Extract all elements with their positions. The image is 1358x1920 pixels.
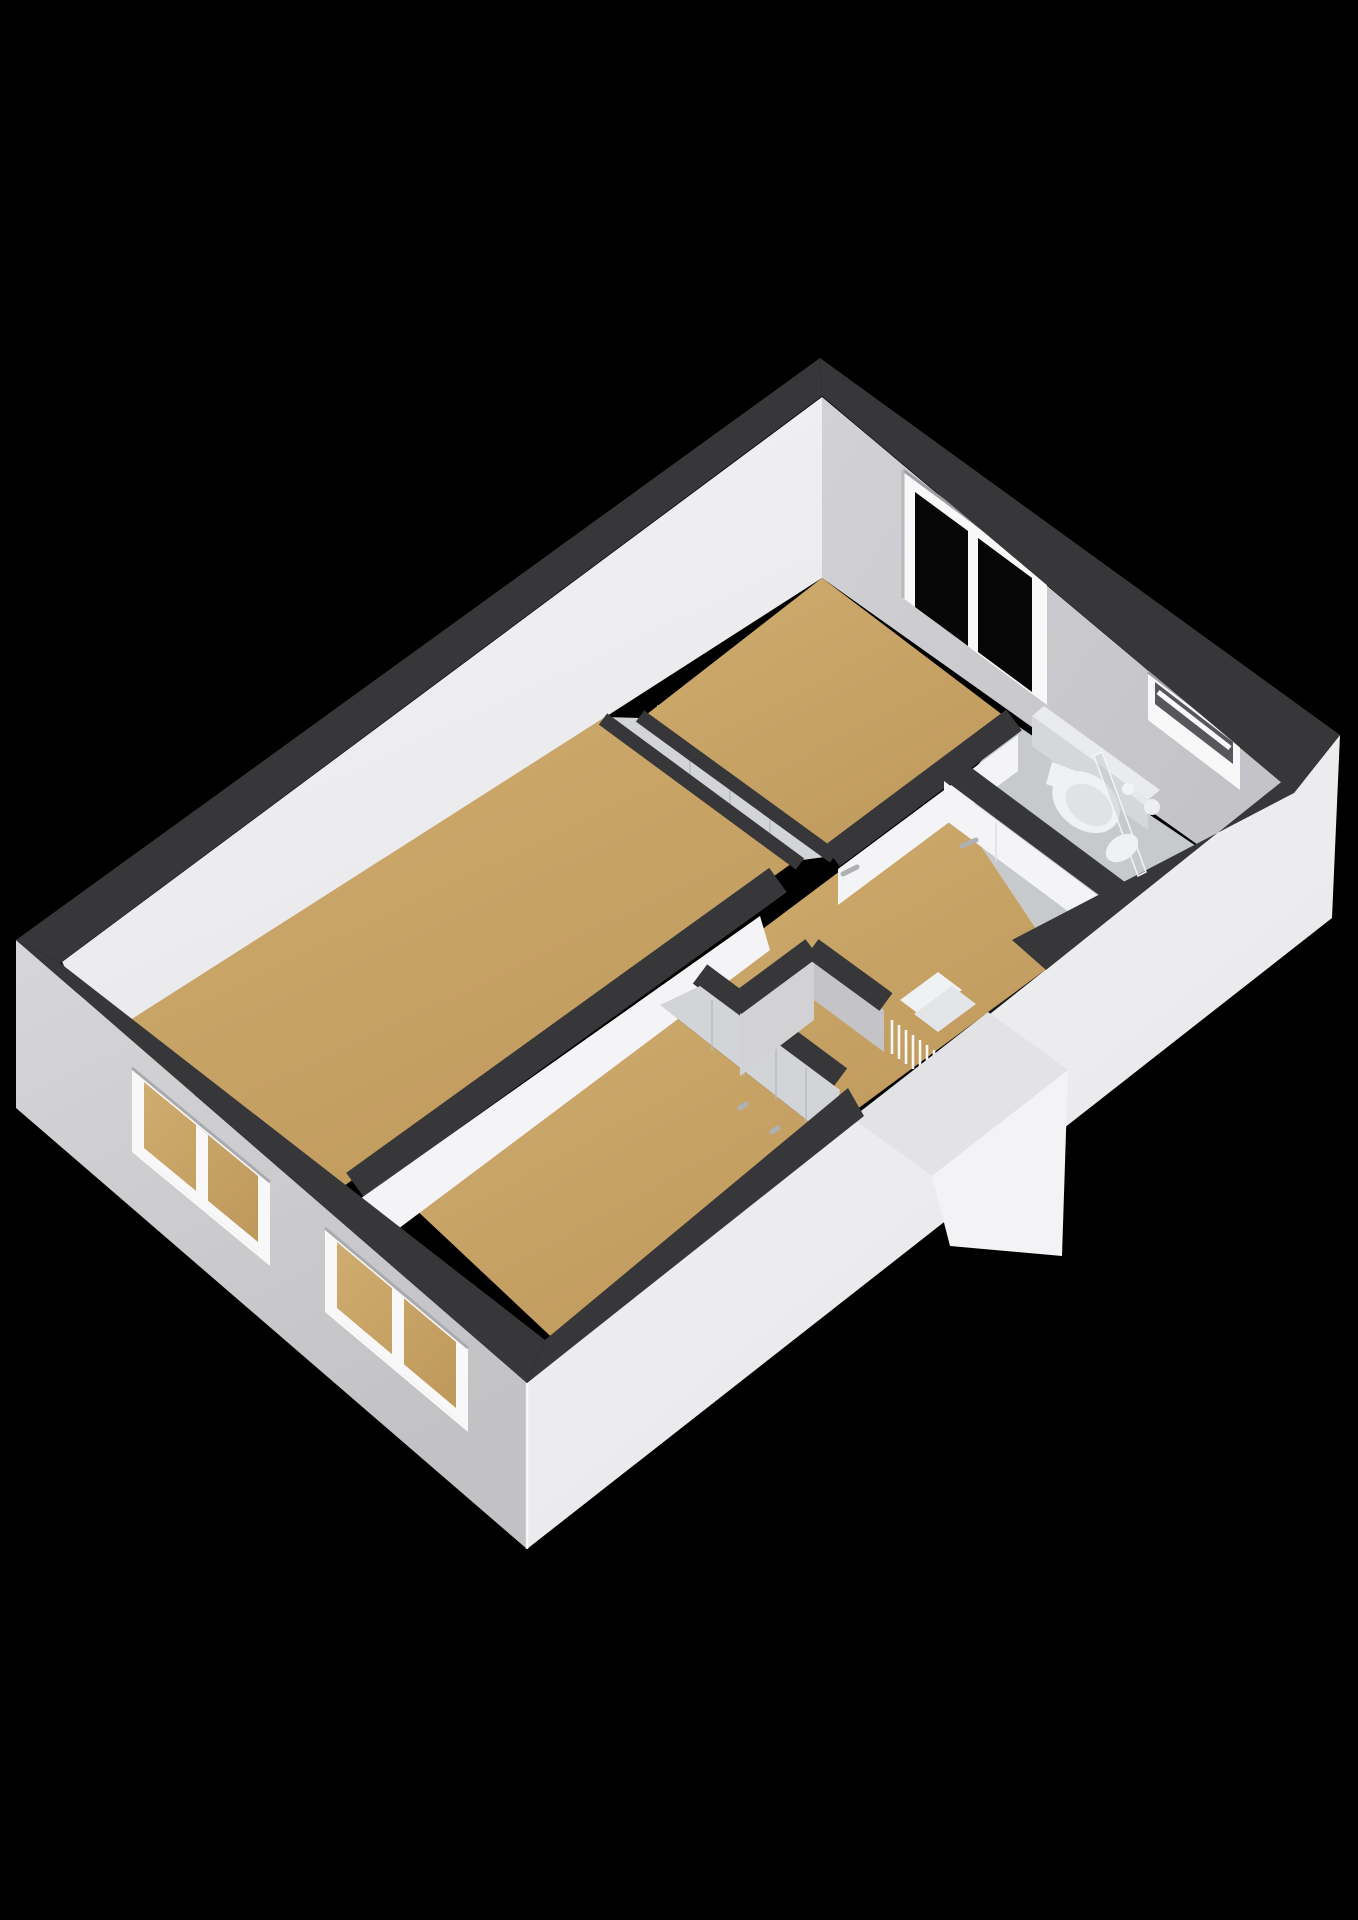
floorplan-3d-render [0,0,1358,1920]
closet-handle [740,1104,746,1108]
closet-handle [772,1128,778,1132]
floorplan-canvas [0,0,1358,1920]
